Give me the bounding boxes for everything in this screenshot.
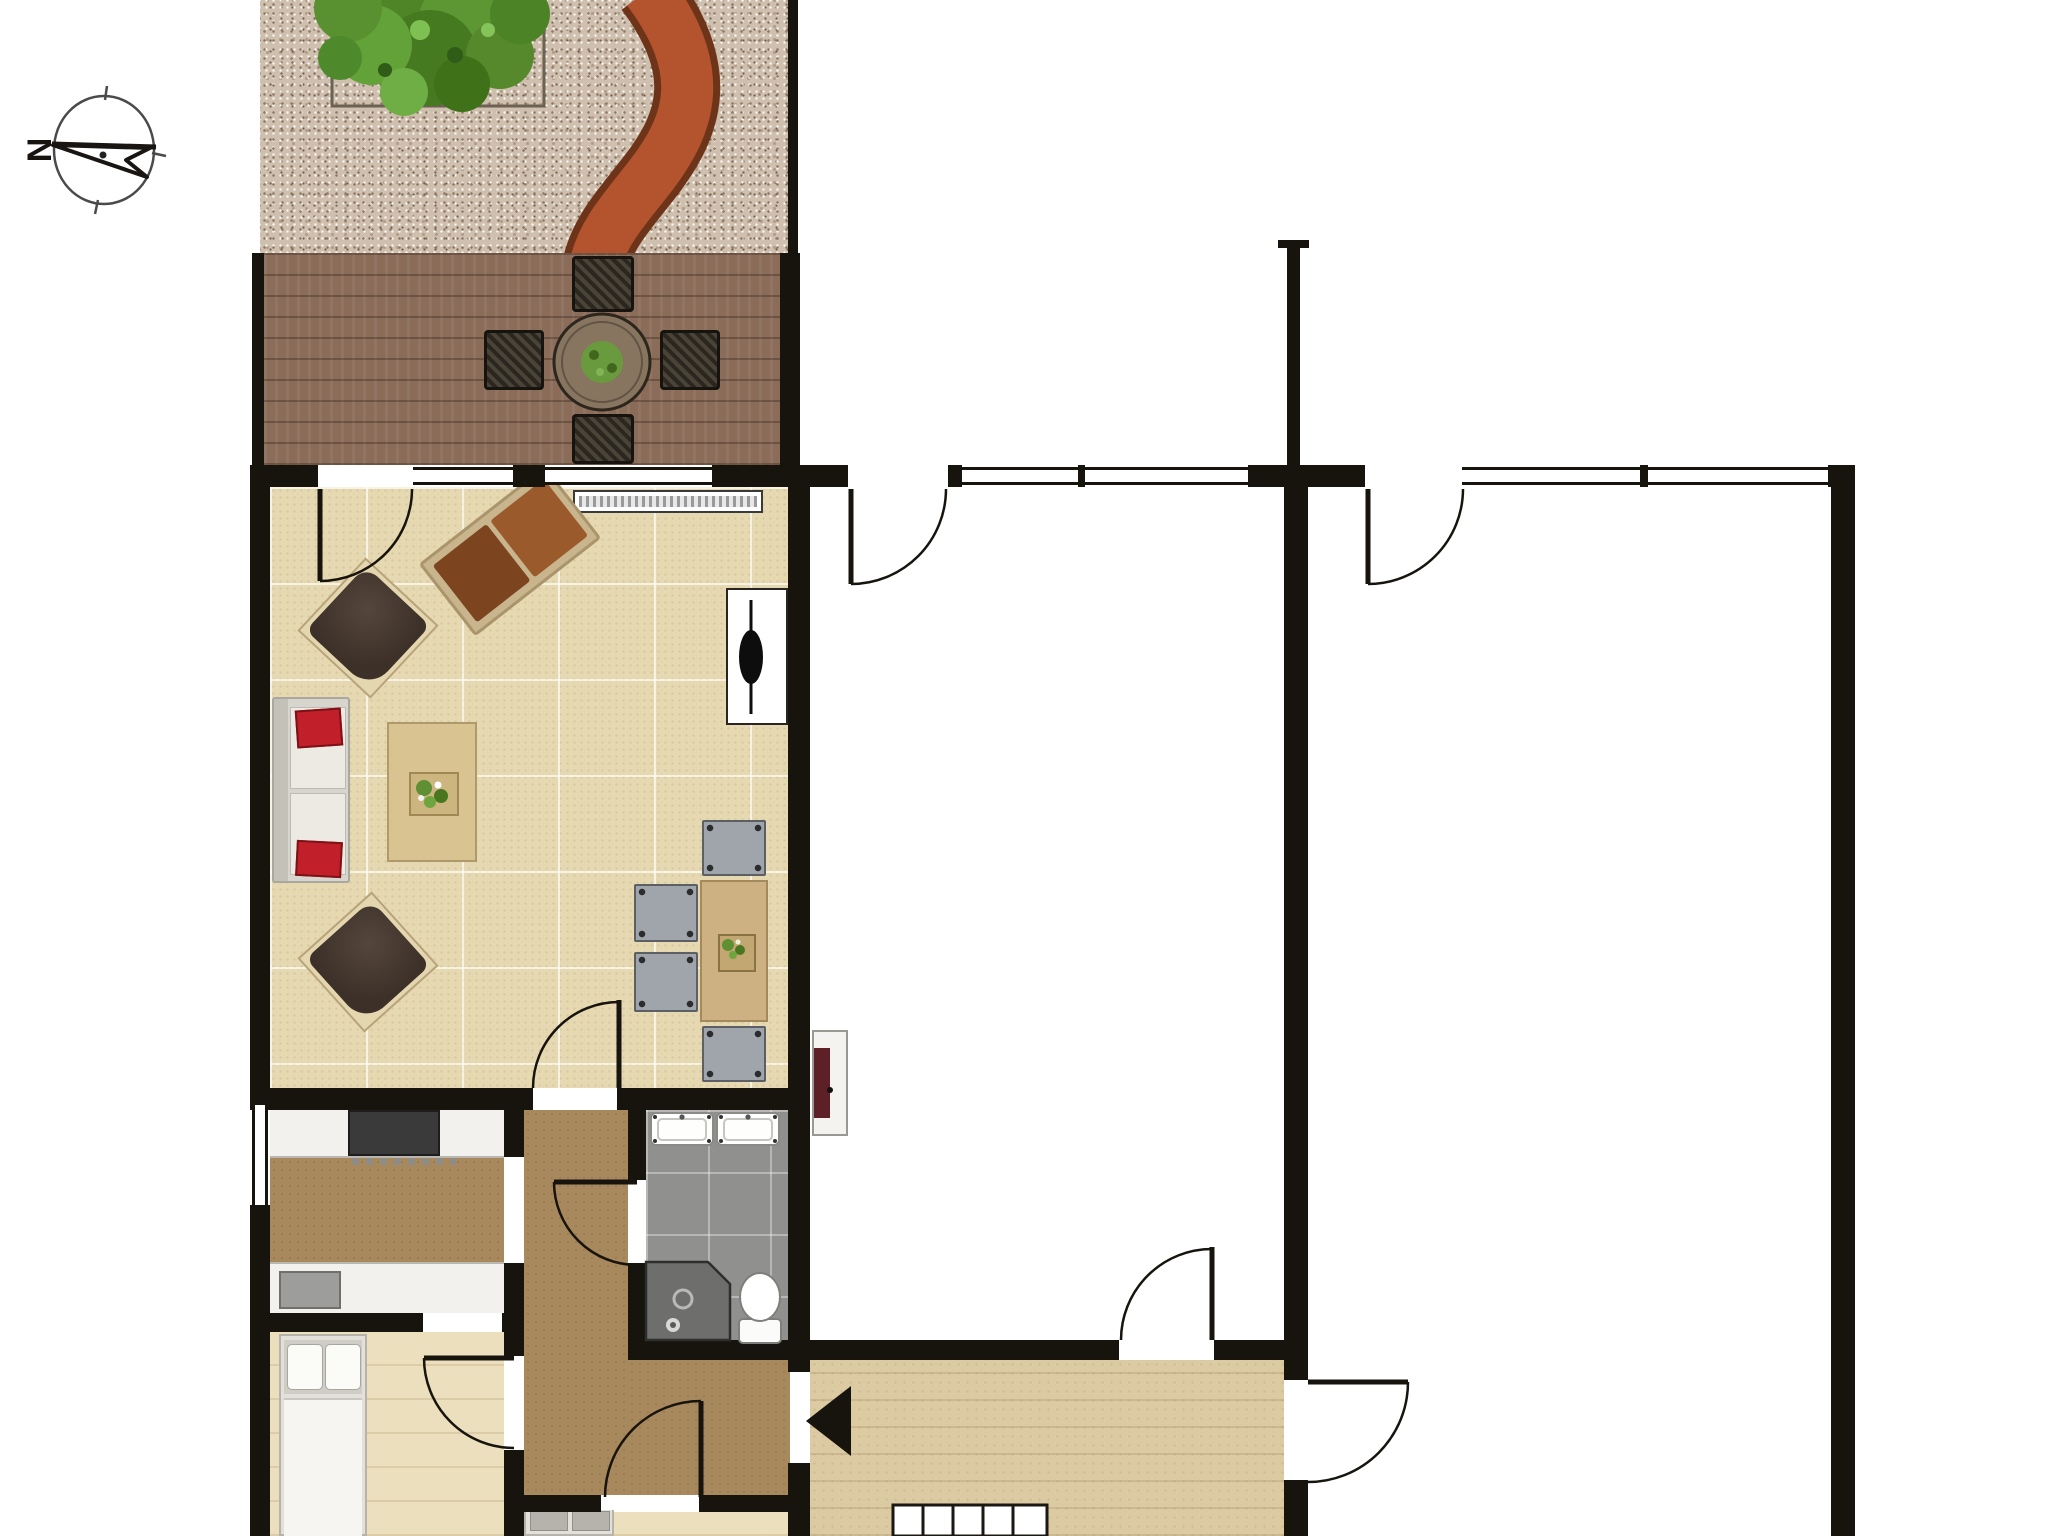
tv-niche: [726, 588, 788, 725]
wall-living-right-b: [788, 1463, 810, 1536]
window-right-2: [1648, 467, 1828, 485]
door-sill-bedroom1: [506, 1356, 522, 1450]
compass-tick-east: [152, 153, 166, 156]
deck-chair-right: [660, 330, 720, 390]
sofa: [272, 697, 350, 883]
room-bathroom: [646, 1110, 788, 1340]
door-sill-stair-middle: [1119, 1342, 1214, 1358]
wall-left-outer-a: [250, 465, 270, 1105]
wall-left-outer-b: [250, 1205, 270, 1536]
radiator: [573, 490, 763, 513]
compass-needle: [53, 145, 150, 177]
wall-kitchen-hall-b: [504, 1263, 524, 1356]
wall-top-d: [948, 465, 962, 487]
wall-stove-front: [814, 1048, 830, 1118]
sofa-red-pillow-2: [295, 840, 343, 878]
wall-kitchen-hall-c: [504, 1450, 524, 1536]
wall-stairhall-top-a: [628, 1340, 1119, 1360]
wall-deck-right-border: [780, 253, 800, 465]
door-sill-bathroom: [630, 1180, 644, 1263]
deck-chair-bottom: [572, 414, 634, 464]
room-right-empty: [1308, 487, 1831, 1536]
room-middle-empty: [810, 487, 1284, 1340]
wall-top-divider-2: [1640, 465, 1648, 487]
dining-table-plant-tray: [718, 934, 756, 972]
room-stair-hall: [810, 1360, 1284, 1536]
door-sill-deck-living: [318, 467, 412, 485]
bed-1: [279, 1334, 367, 1536]
radiator-fins: [579, 496, 757, 507]
wall-living-right-a: [788, 465, 810, 1372]
window-living-2: [545, 467, 712, 485]
compass-tick-south: [95, 200, 98, 214]
bed-2-pillow-1: [530, 1511, 568, 1531]
door-sill-stair-right: [1286, 1380, 1306, 1480]
bed-1-pillow-1: [287, 1344, 323, 1390]
opening-kitchen-bedroom: [423, 1315, 502, 1330]
opening-kitchen-hall: [506, 1157, 522, 1263]
bed-2-pillow-2: [572, 1511, 610, 1531]
dining-table: [700, 880, 768, 1022]
room-hallway: [524, 1110, 628, 1495]
wall-stub-above: [1287, 243, 1300, 465]
door-sill-middle-room: [848, 467, 948, 485]
compass-rose: N: [21, 86, 166, 214]
wall-middle-divider-a: [1284, 465, 1308, 1380]
door-sill-living-hall: [533, 1090, 617, 1108]
wall-top-b: [513, 465, 545, 487]
sofa-backrest: [274, 699, 288, 881]
kitchen-sink: [279, 1271, 341, 1309]
dining-chair-top: [702, 820, 766, 876]
window-middle-2: [1085, 467, 1248, 485]
floor-plan: N: [0, 0, 2048, 1536]
compass-north-label: N: [21, 138, 59, 163]
wall-deck-left-border: [252, 253, 264, 465]
wall-top-divider-1: [1078, 465, 1085, 487]
compass-tick-north: [105, 86, 107, 100]
wall-top-c: [712, 465, 848, 487]
door-sill-bedroom2: [601, 1497, 699, 1510]
coffee-table: [387, 722, 477, 862]
compass-needle-line: [52, 144, 156, 147]
wall-kitchen-bedroom-a: [250, 1313, 423, 1332]
dining-chair-left-1: [634, 884, 698, 942]
sofa-red-pillow-1: [295, 707, 344, 748]
coffee-table-plant-tray: [409, 772, 459, 816]
deck-chair-left: [484, 330, 544, 390]
door-sill-right-room: [1365, 467, 1462, 485]
window-middle-1: [962, 467, 1078, 485]
room-garden: [260, 0, 788, 253]
deck-chair-top: [572, 256, 634, 312]
wall-right-outer: [1831, 465, 1855, 1536]
dining-chair-left-2: [634, 952, 698, 1012]
wall-living-bottom-a: [250, 1088, 533, 1110]
bed-1-pillow-2: [325, 1344, 361, 1390]
wall-hall-bath-b: [628, 1263, 646, 1340]
wall-kitchen-hall-a: [504, 1097, 524, 1157]
wall-bedroom2-top-b: [699, 1495, 790, 1512]
wall-bedroom2-top-a: [524, 1495, 601, 1512]
wall-hall-bath-a: [628, 1097, 646, 1180]
dining-chair-bottom: [702, 1026, 766, 1082]
wall-middle-divider-b: [1284, 1480, 1308, 1536]
wall-stove-fireplace: [812, 1030, 848, 1136]
opening-hall-stairhall: [790, 1372, 808, 1463]
kitchen-stove: [348, 1110, 440, 1156]
bed-1-duvet: [284, 1398, 362, 1536]
window-right-1: [1462, 467, 1640, 485]
compass-center-dot: [100, 152, 107, 159]
window-kitchen: [252, 1105, 268, 1205]
wall-stub-cap: [1278, 240, 1309, 248]
room-hallway-extension: [628, 1360, 790, 1495]
kitchen-stove-controls: [352, 1158, 456, 1165]
wall-garden-right-border: [788, 0, 798, 253]
window-living-1: [413, 467, 513, 485]
